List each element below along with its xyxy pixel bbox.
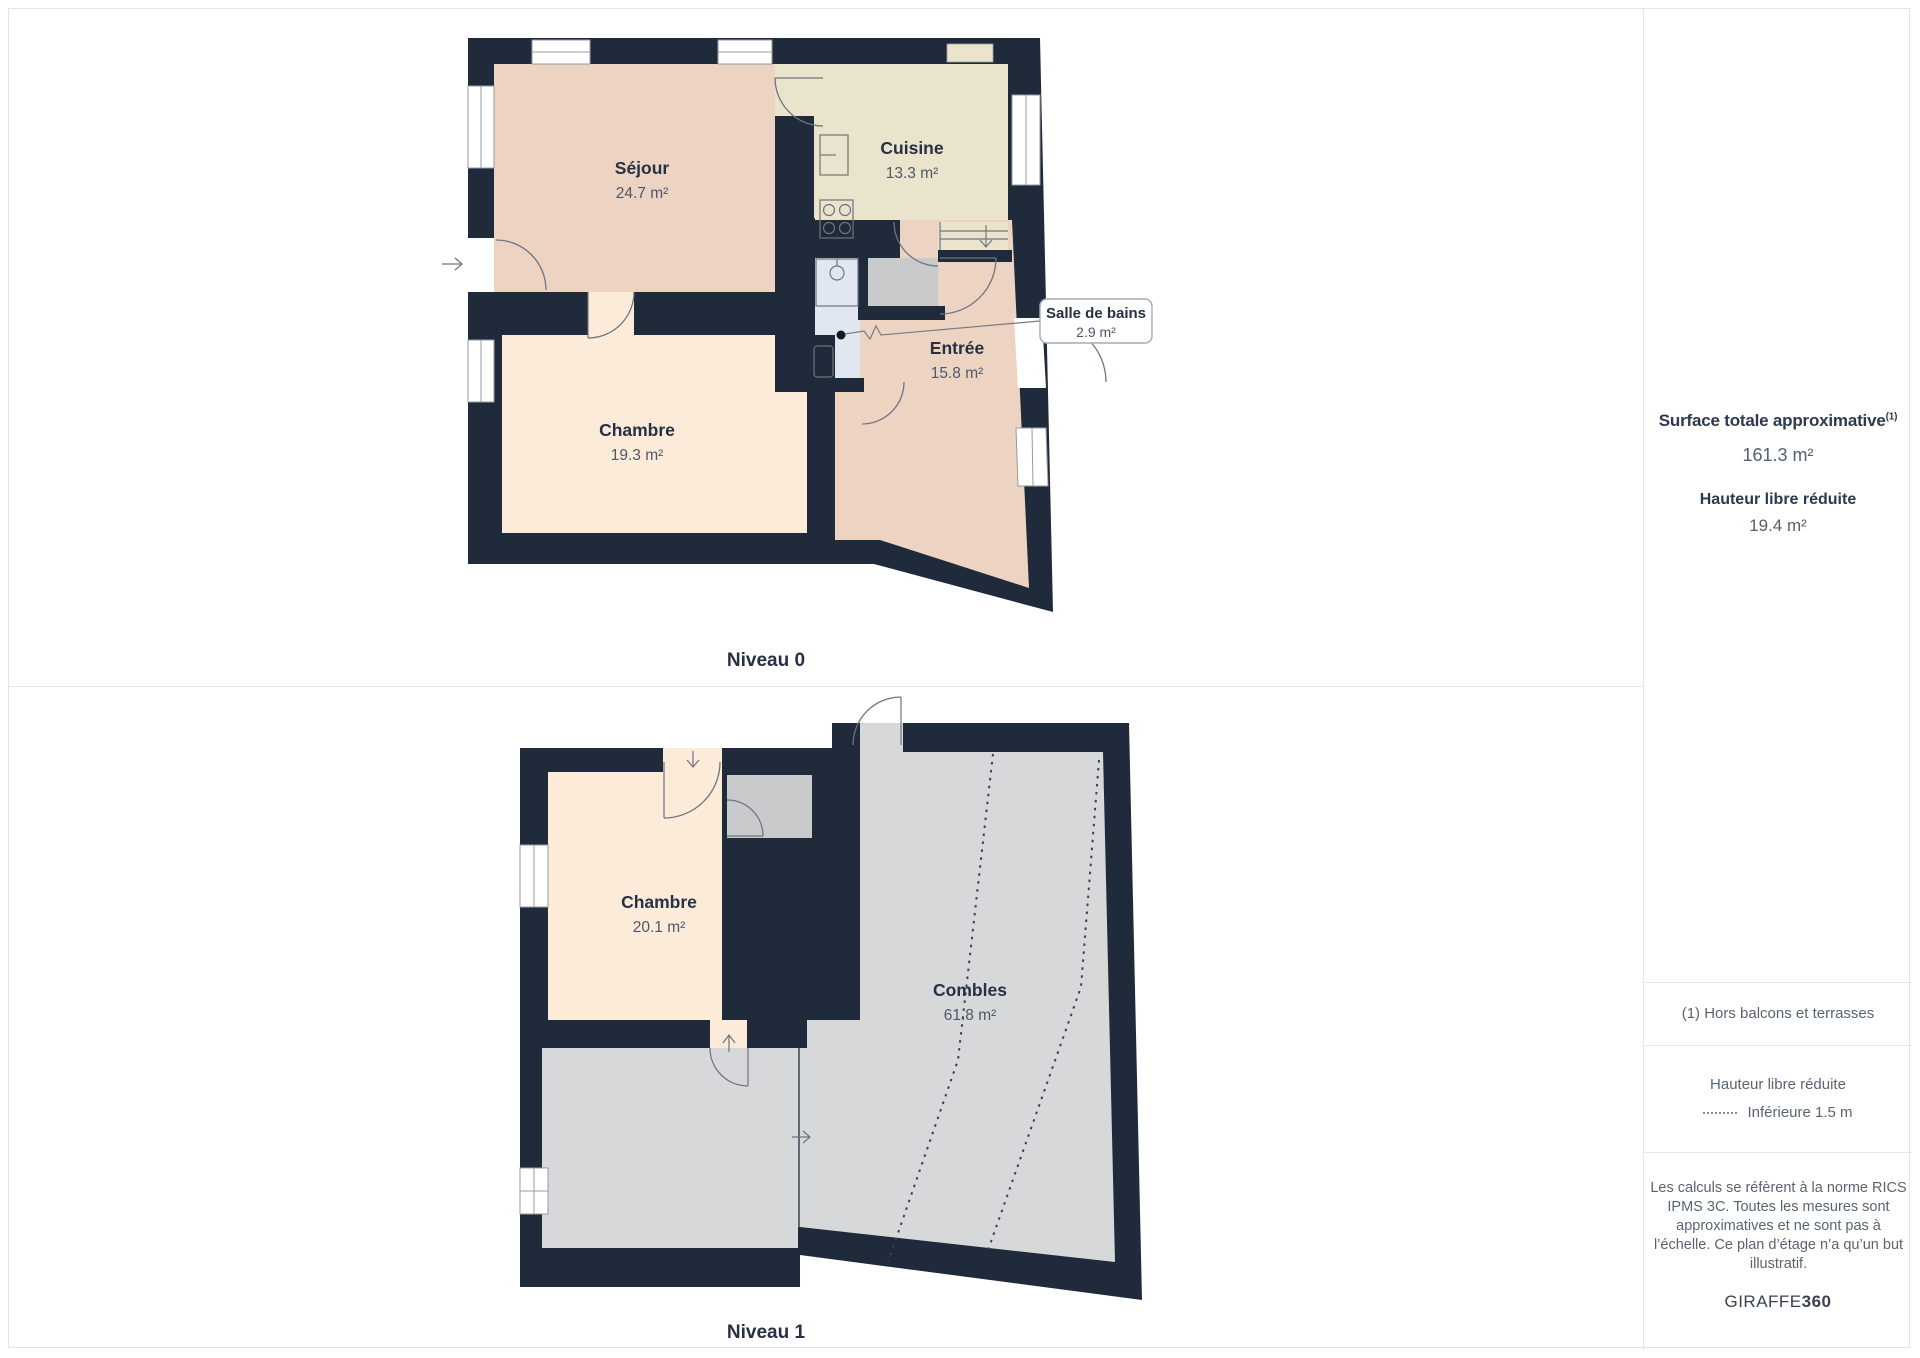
caption-niveau-1: Niveau 1 bbox=[727, 1322, 806, 1343]
section-niveau-1: Chambre 20.1 m² Combles 61.8 m² Niveau 1 bbox=[8, 687, 1643, 1350]
floorplan-document: Salle de bains 2.9 m² Séjour 24.7 m² Cui… bbox=[0, 0, 1920, 1358]
callout-name: Salle de bains bbox=[1046, 305, 1146, 322]
room-sejour bbox=[494, 64, 775, 292]
closet-n1 bbox=[727, 775, 812, 838]
room-chambre-n0-area: 19.3 m² bbox=[611, 447, 664, 464]
leader-anchor-dot bbox=[837, 331, 846, 340]
surface-total-footnote-marker: (1) bbox=[1886, 411, 1898, 422]
callout-salle-de-bains: Salle de bains 2.9 m² bbox=[1040, 299, 1152, 343]
caption-niveau-0: Niveau 0 bbox=[727, 650, 805, 671]
room-gray-lower bbox=[542, 1048, 798, 1248]
surface-total-value: 161.3 m² bbox=[1644, 445, 1912, 466]
floorplan-niveau-1: Chambre 20.1 m² Combles 61.8 m² Niveau 1 bbox=[8, 687, 1643, 1350]
sidebar-divider bbox=[1644, 982, 1912, 983]
reduced-height-title: Hauteur libre réduite bbox=[1644, 491, 1912, 509]
entry-arrow-icon bbox=[442, 258, 462, 270]
door-chambre-n0 bbox=[588, 292, 634, 338]
giraffe360-logo: GIRAFFE360 bbox=[1644, 1292, 1912, 1312]
room-combles-name: Combles bbox=[933, 980, 1007, 1000]
dotted-line-icon bbox=[1703, 1112, 1737, 1115]
callout-area: 2.9 m² bbox=[1076, 324, 1116, 340]
sidebar-divider bbox=[1644, 1152, 1912, 1153]
reduced-height-value: 19.4 m² bbox=[1644, 516, 1912, 536]
room-sejour-area: 24.7 m² bbox=[616, 185, 669, 202]
surface-total-title: Surface totale approximative(1) bbox=[1644, 411, 1912, 431]
legend-item: Inférieure 1.5 m bbox=[1747, 1104, 1852, 1121]
footnote: (1) Hors balcons et terrasses bbox=[1644, 1005, 1912, 1022]
stairs-icon bbox=[938, 222, 1008, 250]
room-chambre-n1-name: Chambre bbox=[621, 892, 697, 912]
disclaimer-text: Les calculs se réfèrent à la norme RICS … bbox=[1646, 1179, 1911, 1274]
legend-row: Inférieure 1.5 m bbox=[1644, 1104, 1912, 1121]
sidebar: Surface totale approximative(1) 161.3 m²… bbox=[1643, 8, 1912, 1350]
surface-total-title-text: Surface totale approximative bbox=[1659, 411, 1886, 430]
logo-name: GIRAFFE bbox=[1724, 1292, 1801, 1311]
room-combles-area: 61.8 m² bbox=[944, 1007, 997, 1024]
room-cuisine-name: Cuisine bbox=[880, 138, 943, 158]
room-entree-name: Entrée bbox=[930, 338, 985, 358]
legend-title: Hauteur libre réduite bbox=[1644, 1076, 1912, 1093]
section-niveau-0: Salle de bains 2.9 m² Séjour 24.7 m² Cui… bbox=[8, 8, 1643, 687]
room-entree-area: 15.8 m² bbox=[931, 365, 984, 382]
door-combles bbox=[853, 697, 903, 752]
logo-suffix: 360 bbox=[1802, 1292, 1832, 1311]
floorplan-niveau-0: Salle de bains 2.9 m² Séjour 24.7 m² Cui… bbox=[8, 8, 1643, 687]
room-chambre-n1-area: 20.1 m² bbox=[633, 919, 686, 936]
room-cuisine-area: 13.3 m² bbox=[886, 165, 939, 182]
room-chambre-n0-name: Chambre bbox=[599, 420, 675, 440]
sidebar-divider bbox=[1644, 1045, 1912, 1046]
room-sejour-name: Séjour bbox=[615, 158, 670, 178]
